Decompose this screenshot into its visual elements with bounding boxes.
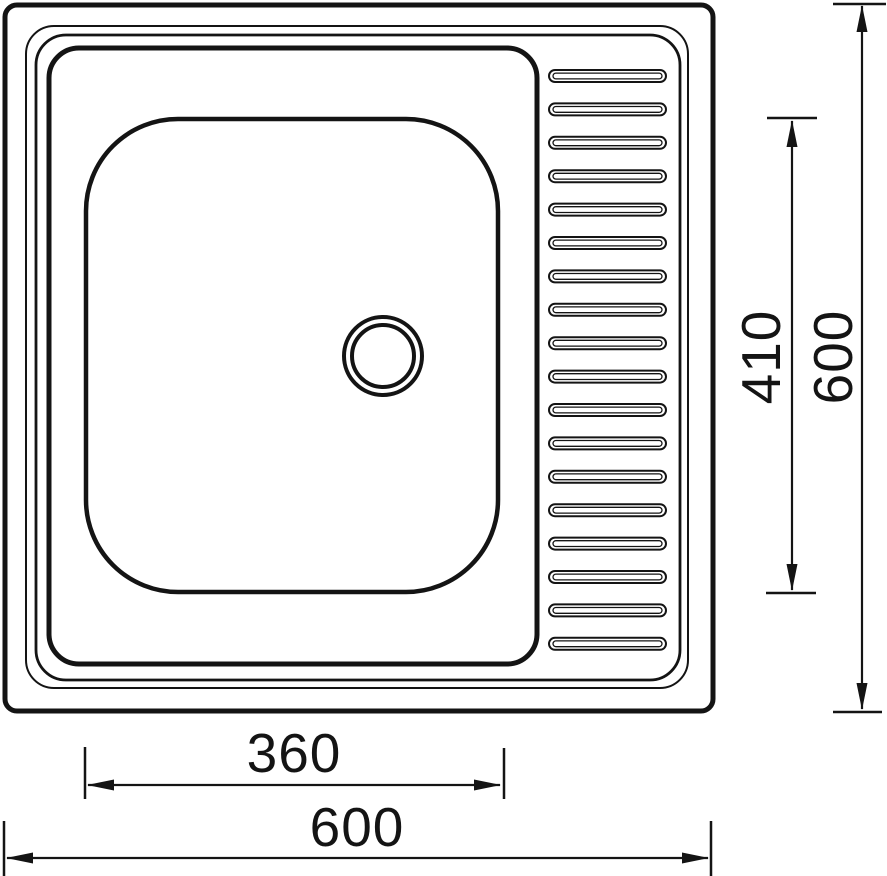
drainer-ridge-inner bbox=[553, 140, 662, 146]
drainer-ridge bbox=[549, 571, 666, 583]
drainer-ridges bbox=[549, 70, 666, 650]
drainer-ridge bbox=[549, 170, 666, 182]
drainer-ridge bbox=[549, 604, 666, 616]
drainer-ridge bbox=[549, 103, 666, 115]
drainer-ridge-inner bbox=[553, 73, 662, 79]
drainer-ridge-inner bbox=[553, 307, 662, 313]
bowl-outline bbox=[86, 119, 498, 592]
drainer-ridge-inner bbox=[553, 274, 662, 280]
drain-hole-inner-ring bbox=[352, 325, 414, 387]
dim-arrow-right bbox=[682, 853, 709, 864]
drainer-ridge bbox=[549, 204, 666, 216]
dim-arrow-left bbox=[87, 780, 114, 791]
dim-label-bowl-height: 410 bbox=[730, 310, 792, 405]
drainer-ridge-inner bbox=[553, 441, 662, 447]
drainer-ridge-inner bbox=[553, 541, 662, 547]
drainer-ridge-inner bbox=[553, 507, 662, 513]
drainer-ridge bbox=[549, 304, 666, 316]
drainer-ridge-inner bbox=[553, 107, 662, 113]
dim-overall-width: 600 bbox=[4, 796, 711, 876]
dim-arrow-up bbox=[787, 120, 798, 147]
drainer-ridge bbox=[549, 404, 666, 416]
drainer-ridge-inner bbox=[553, 574, 662, 580]
dim-arrow-down bbox=[787, 564, 798, 591]
drainer-ridge bbox=[549, 638, 666, 650]
drainer-ridge-inner bbox=[553, 240, 662, 246]
drainer-ridge bbox=[549, 137, 666, 149]
sink-outline-group bbox=[5, 5, 713, 711]
dim-label-bowl-width: 360 bbox=[247, 722, 342, 784]
drainer-ridge-inner bbox=[553, 474, 662, 480]
drainer-ridge-inner bbox=[553, 407, 662, 413]
drainer-ridge-inner bbox=[553, 340, 662, 346]
drainer-ridge bbox=[549, 371, 666, 383]
drainer-ridge-inner bbox=[553, 207, 662, 213]
drainer-ridge bbox=[549, 337, 666, 349]
drain-hole-outer-ring bbox=[344, 317, 422, 395]
drawing-canvas: 360 600 410 600 bbox=[0, 0, 887, 876]
drainer-ridge bbox=[549, 70, 666, 82]
rim-line-outer bbox=[26, 26, 688, 688]
dim-bowl-width: 360 bbox=[85, 722, 504, 799]
drainer-ridge-inner bbox=[553, 173, 662, 179]
dim-arrow-up bbox=[857, 5, 868, 32]
dim-label-overall-width: 600 bbox=[310, 796, 405, 858]
drainer-ridge bbox=[549, 437, 666, 449]
drainer-ridge-inner bbox=[553, 641, 662, 647]
dim-arrow-down bbox=[857, 683, 868, 710]
drainer-ridge-inner bbox=[553, 374, 662, 380]
drainer-ridge bbox=[549, 504, 666, 516]
dim-arrow-left bbox=[6, 853, 33, 864]
drainer-ridge bbox=[549, 538, 666, 550]
dim-label-overall-height: 600 bbox=[802, 310, 864, 405]
dim-overall-height: 600 bbox=[802, 4, 886, 712]
drainer-ridge bbox=[549, 237, 666, 249]
drainer-ridge-inner bbox=[553, 608, 662, 614]
drainer-ridge bbox=[549, 471, 666, 483]
drainer-ridge bbox=[549, 270, 666, 282]
dim-arrow-right bbox=[474, 780, 501, 791]
sink-technical-drawing: 360 600 410 600 bbox=[0, 0, 887, 876]
